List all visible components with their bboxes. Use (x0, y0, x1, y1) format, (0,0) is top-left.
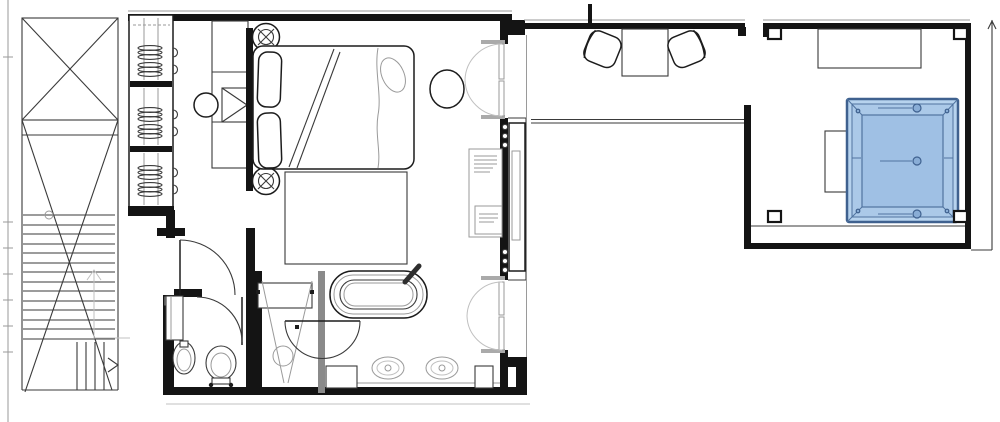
balcony-top-wall (524, 23, 745, 29)
bed (253, 46, 414, 169)
floor-plan-canvas (0, 0, 1000, 422)
corner-post-bottom-right (954, 211, 967, 222)
balcony-chair-right (665, 28, 708, 70)
wc-door (197, 297, 242, 345)
wall-top (128, 14, 512, 21)
desk-chair (194, 93, 218, 117)
bathtub (330, 266, 427, 318)
terrace (744, 20, 971, 249)
balcony (524, 4, 746, 123)
balcony-chair-left (581, 28, 624, 70)
hot-tub (847, 99, 958, 222)
floor-plan-page (0, 0, 1000, 422)
sink-right (426, 357, 458, 379)
vanity-cabinet-right (475, 366, 493, 388)
rug (285, 172, 407, 264)
annotation-label (469, 149, 502, 237)
terrace-left-wall (744, 105, 751, 249)
wall-shower-right (318, 271, 325, 393)
balcony-table (622, 29, 668, 76)
pillow-bottom (257, 113, 282, 169)
pillow-top (257, 52, 282, 108)
terrace-bench-top (818, 29, 921, 68)
corner-post-bottom-left (768, 211, 781, 222)
wc-cabinet (166, 296, 183, 340)
nightstand-bottom (253, 168, 280, 195)
entry-door (180, 240, 235, 295)
sink-left (372, 357, 404, 379)
property-line-right (971, 20, 996, 250)
toilet (206, 346, 236, 387)
corner-post-top-right (954, 28, 967, 39)
wc-basin (173, 341, 195, 374)
vanity-cabinet-left (326, 366, 357, 388)
staircase (22, 18, 130, 392)
desk (212, 21, 248, 168)
terrace-bottom-wall (745, 243, 971, 249)
shower-bench (258, 283, 312, 308)
wall-niche (469, 118, 526, 280)
property-line-left (3, 0, 13, 422)
terrace-top-wall (763, 23, 971, 29)
french-door-bottom (467, 276, 505, 353)
shower (256, 281, 314, 383)
stair-up-arrow (87, 270, 130, 338)
terrace-bench-side (825, 131, 848, 192)
stair-exit-arrow (108, 358, 118, 372)
corner-post-top-left (768, 28, 781, 39)
vanity (326, 357, 500, 388)
shower-door-handle (295, 325, 299, 329)
wall-right-lower (500, 350, 508, 390)
french-door-top (465, 40, 505, 119)
wardrobe (128, 15, 178, 216)
balcony-railing (531, 120, 744, 124)
stair-treads (23, 215, 115, 390)
headboard-wall (246, 28, 253, 191)
shower-drain (273, 346, 293, 366)
pouf (430, 70, 464, 108)
